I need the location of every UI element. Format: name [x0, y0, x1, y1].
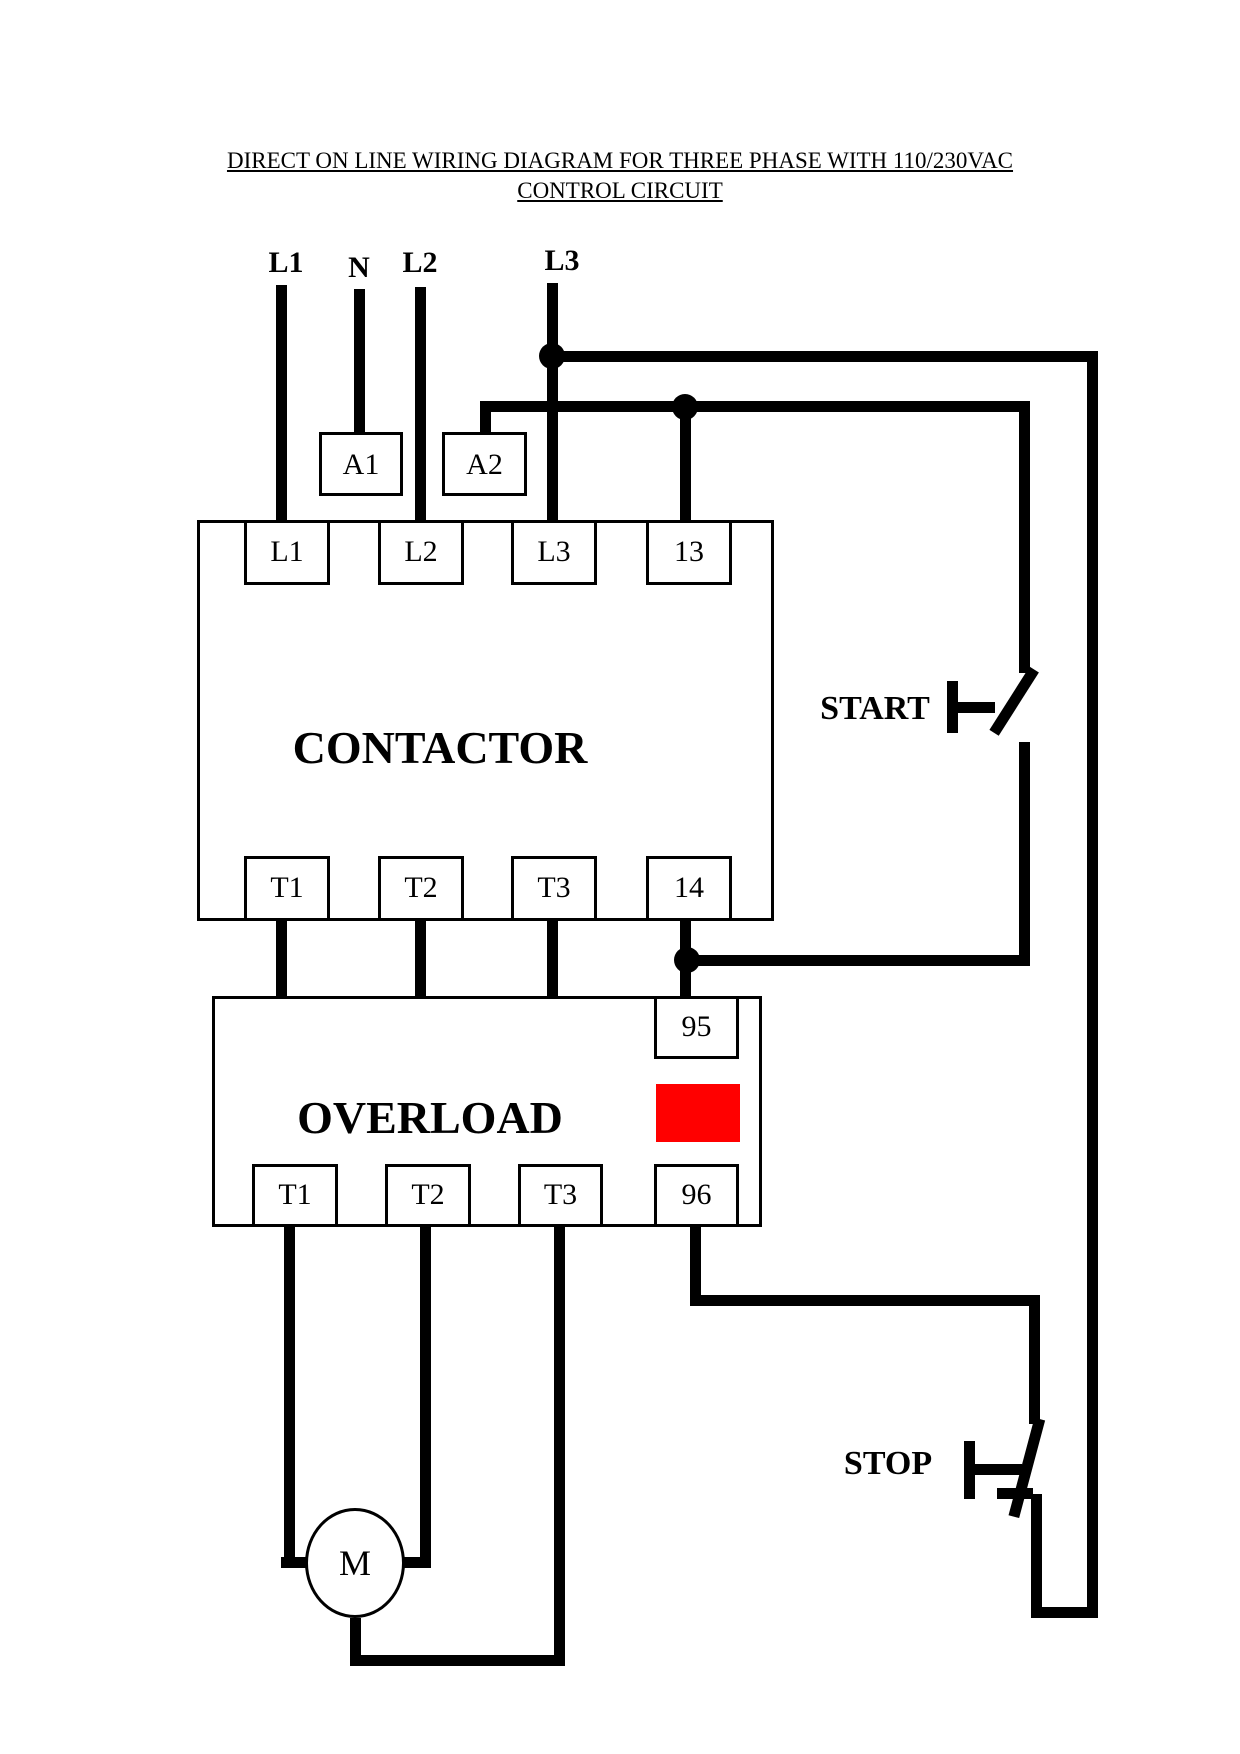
start-label: START: [775, 692, 975, 726]
wire-motor-right-stub: [401, 1557, 431, 1568]
coil-terminal-a2: A2: [442, 432, 527, 496]
wire-stop-upper: [1029, 1295, 1040, 1424]
contactor-terminal-l3: L3: [511, 520, 597, 585]
wire-feed-l2: [415, 287, 426, 525]
wire-14-to-start: [682, 955, 1030, 966]
wire-motor-bottom-run: [350, 1655, 565, 1666]
supply-label-l3: L3: [512, 244, 612, 278]
contactor-terminal-t1: T1: [244, 856, 330, 921]
wire-feed-l1: [276, 285, 287, 525]
wire-t3-to-overload: [547, 921, 558, 999]
wire-t2-to-overload: [415, 921, 426, 999]
contactor-terminal-l2: L2: [378, 520, 464, 585]
motor-label: M: [339, 1543, 371, 1583]
wire-stop-to-rail: [1031, 1607, 1098, 1618]
overload-label: OVERLOAD: [180, 1092, 680, 1144]
diagram-title-line2: CONTROL CIRCUIT: [0, 176, 1240, 206]
contactor-label: CONTACTOR: [190, 722, 690, 774]
wire-start-upper: [1019, 401, 1030, 673]
overload-terminal-t3: T3: [518, 1164, 603, 1227]
contactor-terminal-14: 14: [646, 856, 732, 921]
contactor-terminal-t3: T3: [511, 856, 597, 921]
contactor-terminal-l1: L1: [244, 520, 330, 585]
wire-motor-t3: [554, 1227, 565, 1666]
start-switch-blade: [989, 667, 1038, 736]
coil-terminal-a1: A1: [319, 432, 403, 496]
overload-terminal-t2: T2: [385, 1164, 471, 1227]
junction-dot-14: [674, 947, 700, 973]
diagram-title: DIRECT ON LINE WIRING DIAGRAM FOR THREE …: [0, 146, 1240, 206]
junction-dot-l3: [539, 343, 565, 369]
supply-label-l2: L2: [370, 246, 470, 280]
overload-terminal-95: 95: [654, 996, 739, 1059]
wire-l3-to-stop-rail: [552, 351, 1098, 362]
wire-96-to-stop: [690, 1295, 1040, 1306]
wire-motor-t2: [420, 1227, 431, 1568]
junction-dot-13: [672, 394, 698, 420]
overload-terminal-t1: T1: [252, 1164, 338, 1227]
contactor-terminal-t2: T2: [378, 856, 464, 921]
motor-circle: M: [305, 1508, 405, 1618]
wire-a2-to-start: [480, 401, 1030, 412]
wiring-diagram-page: DIRECT ON LINE WIRING DIAGRAM FOR THREE …: [0, 0, 1240, 1754]
diagram-title-line1: DIRECT ON LINE WIRING DIAGRAM FOR THREE …: [0, 146, 1240, 176]
wire-feed-n: [354, 289, 365, 435]
stop-label: STOP: [788, 1447, 988, 1481]
wire-stop-lower: [1031, 1494, 1042, 1618]
wire-to-terminal-13: [680, 407, 691, 525]
wire-t1-to-overload: [276, 921, 287, 999]
wire-a2-riser: [480, 401, 491, 435]
contactor-terminal-13: 13: [646, 520, 732, 585]
wire-start-lower: [1019, 742, 1030, 966]
overload-terminal-96: 96: [654, 1164, 739, 1227]
wire-outer-right-rail: [1087, 351, 1098, 1618]
wire-motor-t1: [284, 1227, 295, 1568]
